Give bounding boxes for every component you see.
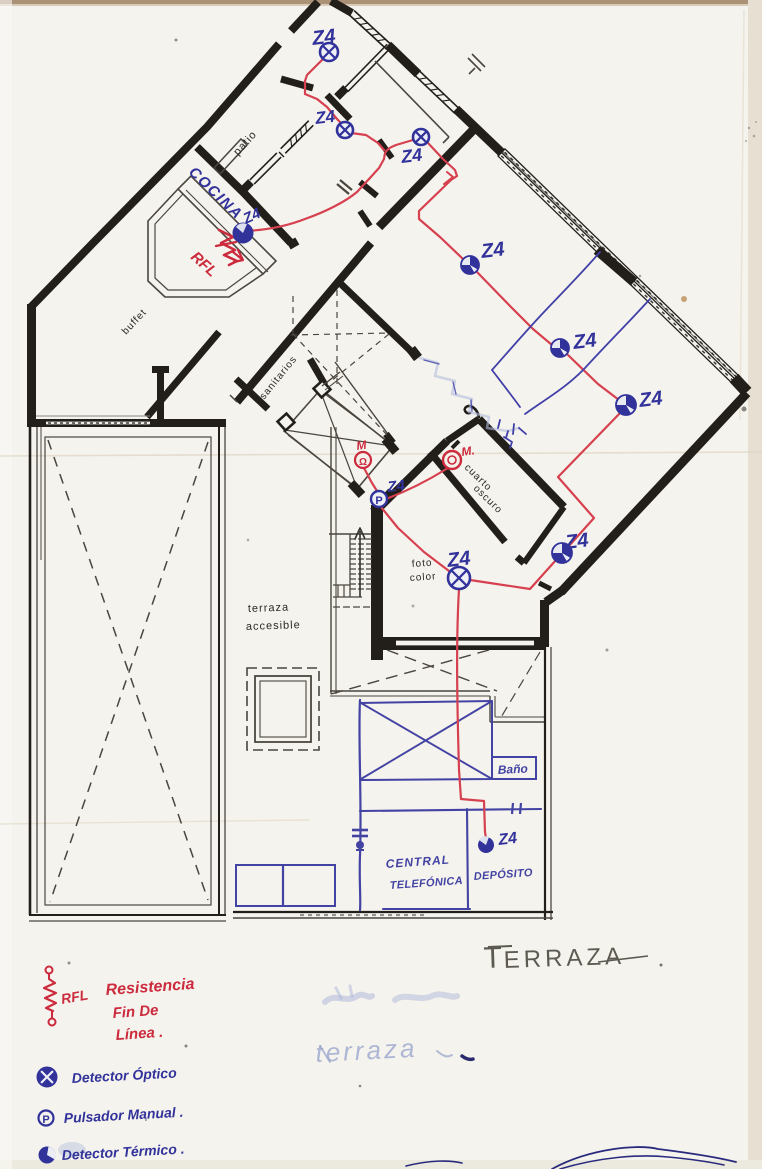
- svg-text:Z4: Z4: [637, 387, 664, 412]
- svg-text:Línea .: Línea .: [115, 1024, 164, 1044]
- svg-text:P: P: [375, 495, 382, 507]
- svg-text:accesible: accesible: [246, 619, 301, 633]
- svg-text:M.: M.: [460, 443, 475, 459]
- svg-text:Z4: Z4: [571, 329, 598, 354]
- svg-text:Ω: Ω: [359, 457, 367, 468]
- svg-text:Z4: Z4: [479, 238, 506, 263]
- svg-text:Z4: Z4: [310, 25, 337, 50]
- svg-text:Z4: Z4: [445, 547, 472, 572]
- svg-text:color: color: [409, 571, 436, 584]
- svg-text:Z4: Z4: [313, 107, 337, 128]
- svg-text:Baño: Baño: [497, 761, 528, 777]
- svg-text:Z4: Z4: [563, 529, 590, 554]
- svg-text:Z4: Z4: [399, 145, 423, 168]
- svg-text:Fin De: Fin De: [112, 1002, 159, 1022]
- svg-text:P: P: [42, 1114, 49, 1126]
- svg-text:ERRAZA: ERRAZA: [503, 943, 625, 974]
- svg-text:foto: foto: [411, 558, 432, 570]
- svg-text:Z4: Z4: [385, 477, 406, 496]
- svg-text:Z4: Z4: [496, 830, 518, 849]
- svg-text:terraza: terraza: [248, 602, 290, 615]
